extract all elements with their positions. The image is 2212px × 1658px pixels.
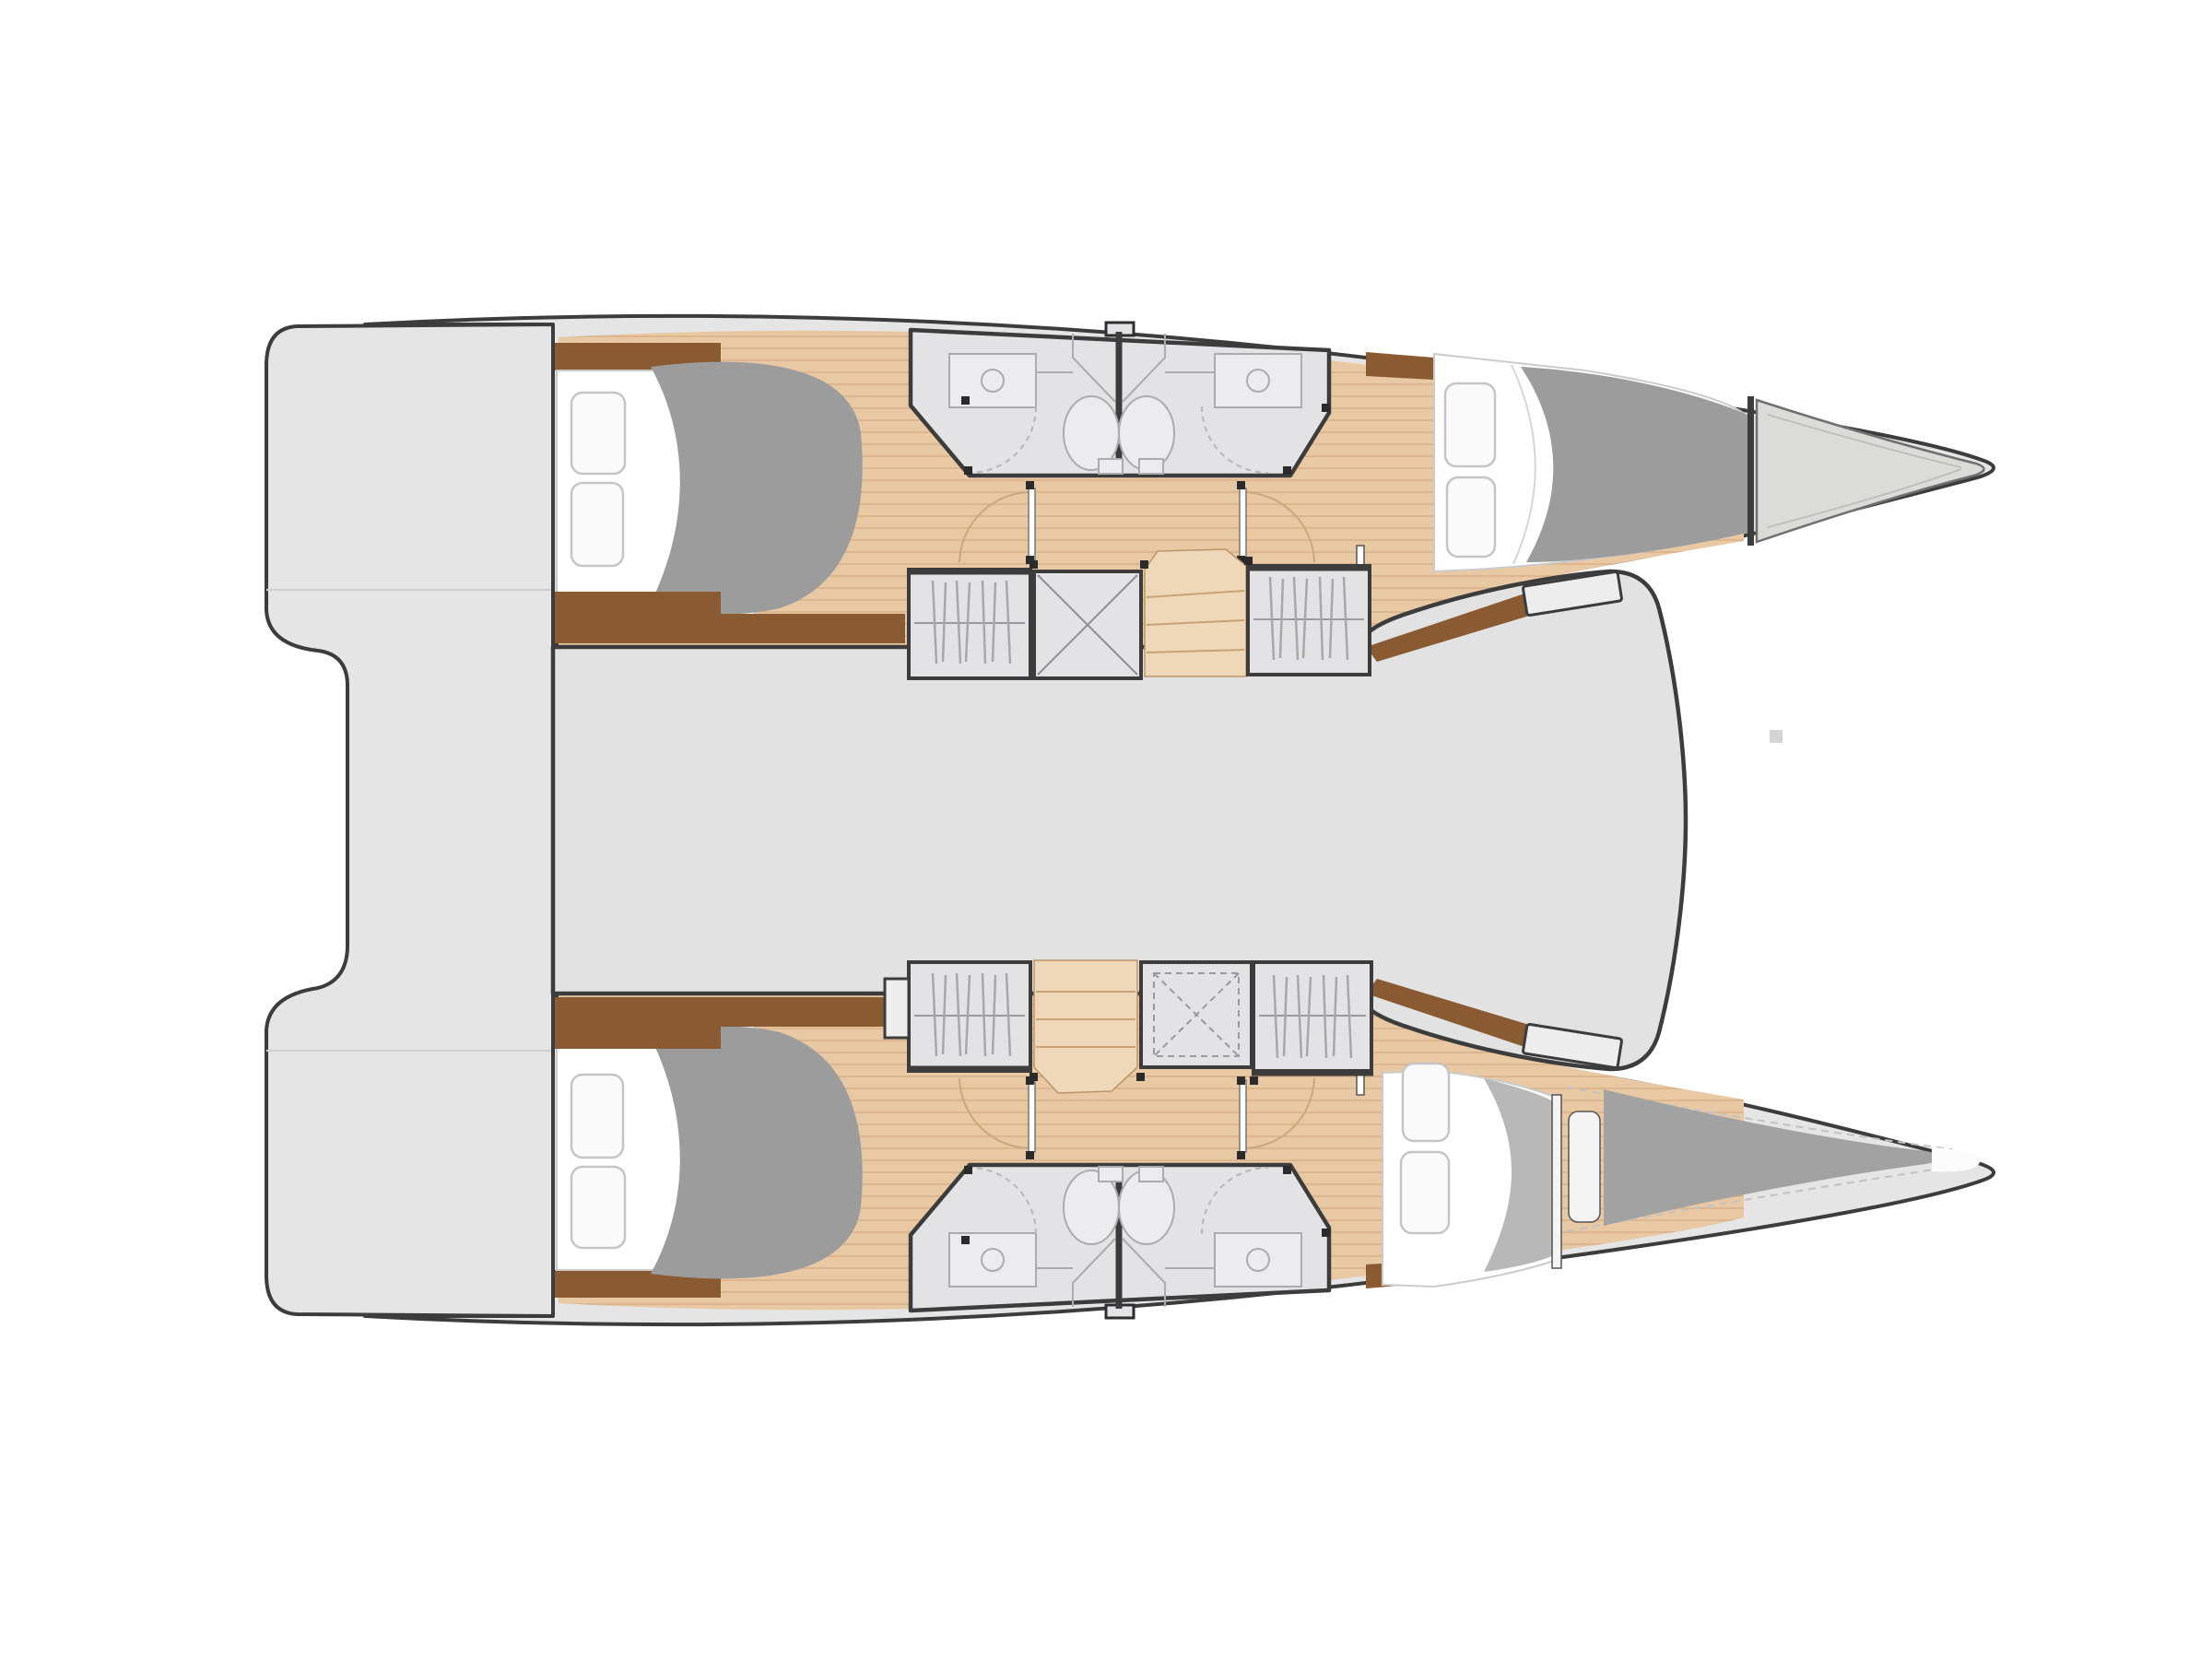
stern-platform xyxy=(266,324,553,1316)
floor-plan-drawing xyxy=(0,0,2212,1658)
duvet xyxy=(1521,367,1747,562)
bathroom-block xyxy=(911,323,1330,476)
hull-side-trim xyxy=(555,614,905,643)
pillow xyxy=(1447,477,1495,557)
pillow xyxy=(1445,383,1495,466)
staircase xyxy=(1034,960,1137,1093)
cabin-door xyxy=(1240,488,1246,560)
cabin-door xyxy=(1029,488,1035,560)
pillow xyxy=(1403,1064,1449,1141)
catamaran-floor-plan xyxy=(0,0,2212,1658)
locker-side-tab xyxy=(885,979,909,1038)
pillow xyxy=(571,393,625,474)
trampoline-fitting xyxy=(1770,730,1783,743)
swim-platform-outline xyxy=(266,324,553,1316)
toilet-cistern xyxy=(1139,459,1163,474)
bow-hatch xyxy=(1569,1111,1600,1222)
bow-bulkhead xyxy=(1747,396,1754,546)
toilet-cistern xyxy=(1099,459,1123,474)
staircase xyxy=(1145,549,1246,676)
pillow xyxy=(1401,1152,1449,1233)
pillow xyxy=(571,483,623,566)
bow-tip-cap xyxy=(1932,1147,1980,1171)
sink-counter xyxy=(1215,354,1301,407)
bow-bulkhead xyxy=(1552,1095,1561,1268)
headboard-trim xyxy=(1366,352,1434,380)
port-forward-cabin xyxy=(1366,352,1984,571)
